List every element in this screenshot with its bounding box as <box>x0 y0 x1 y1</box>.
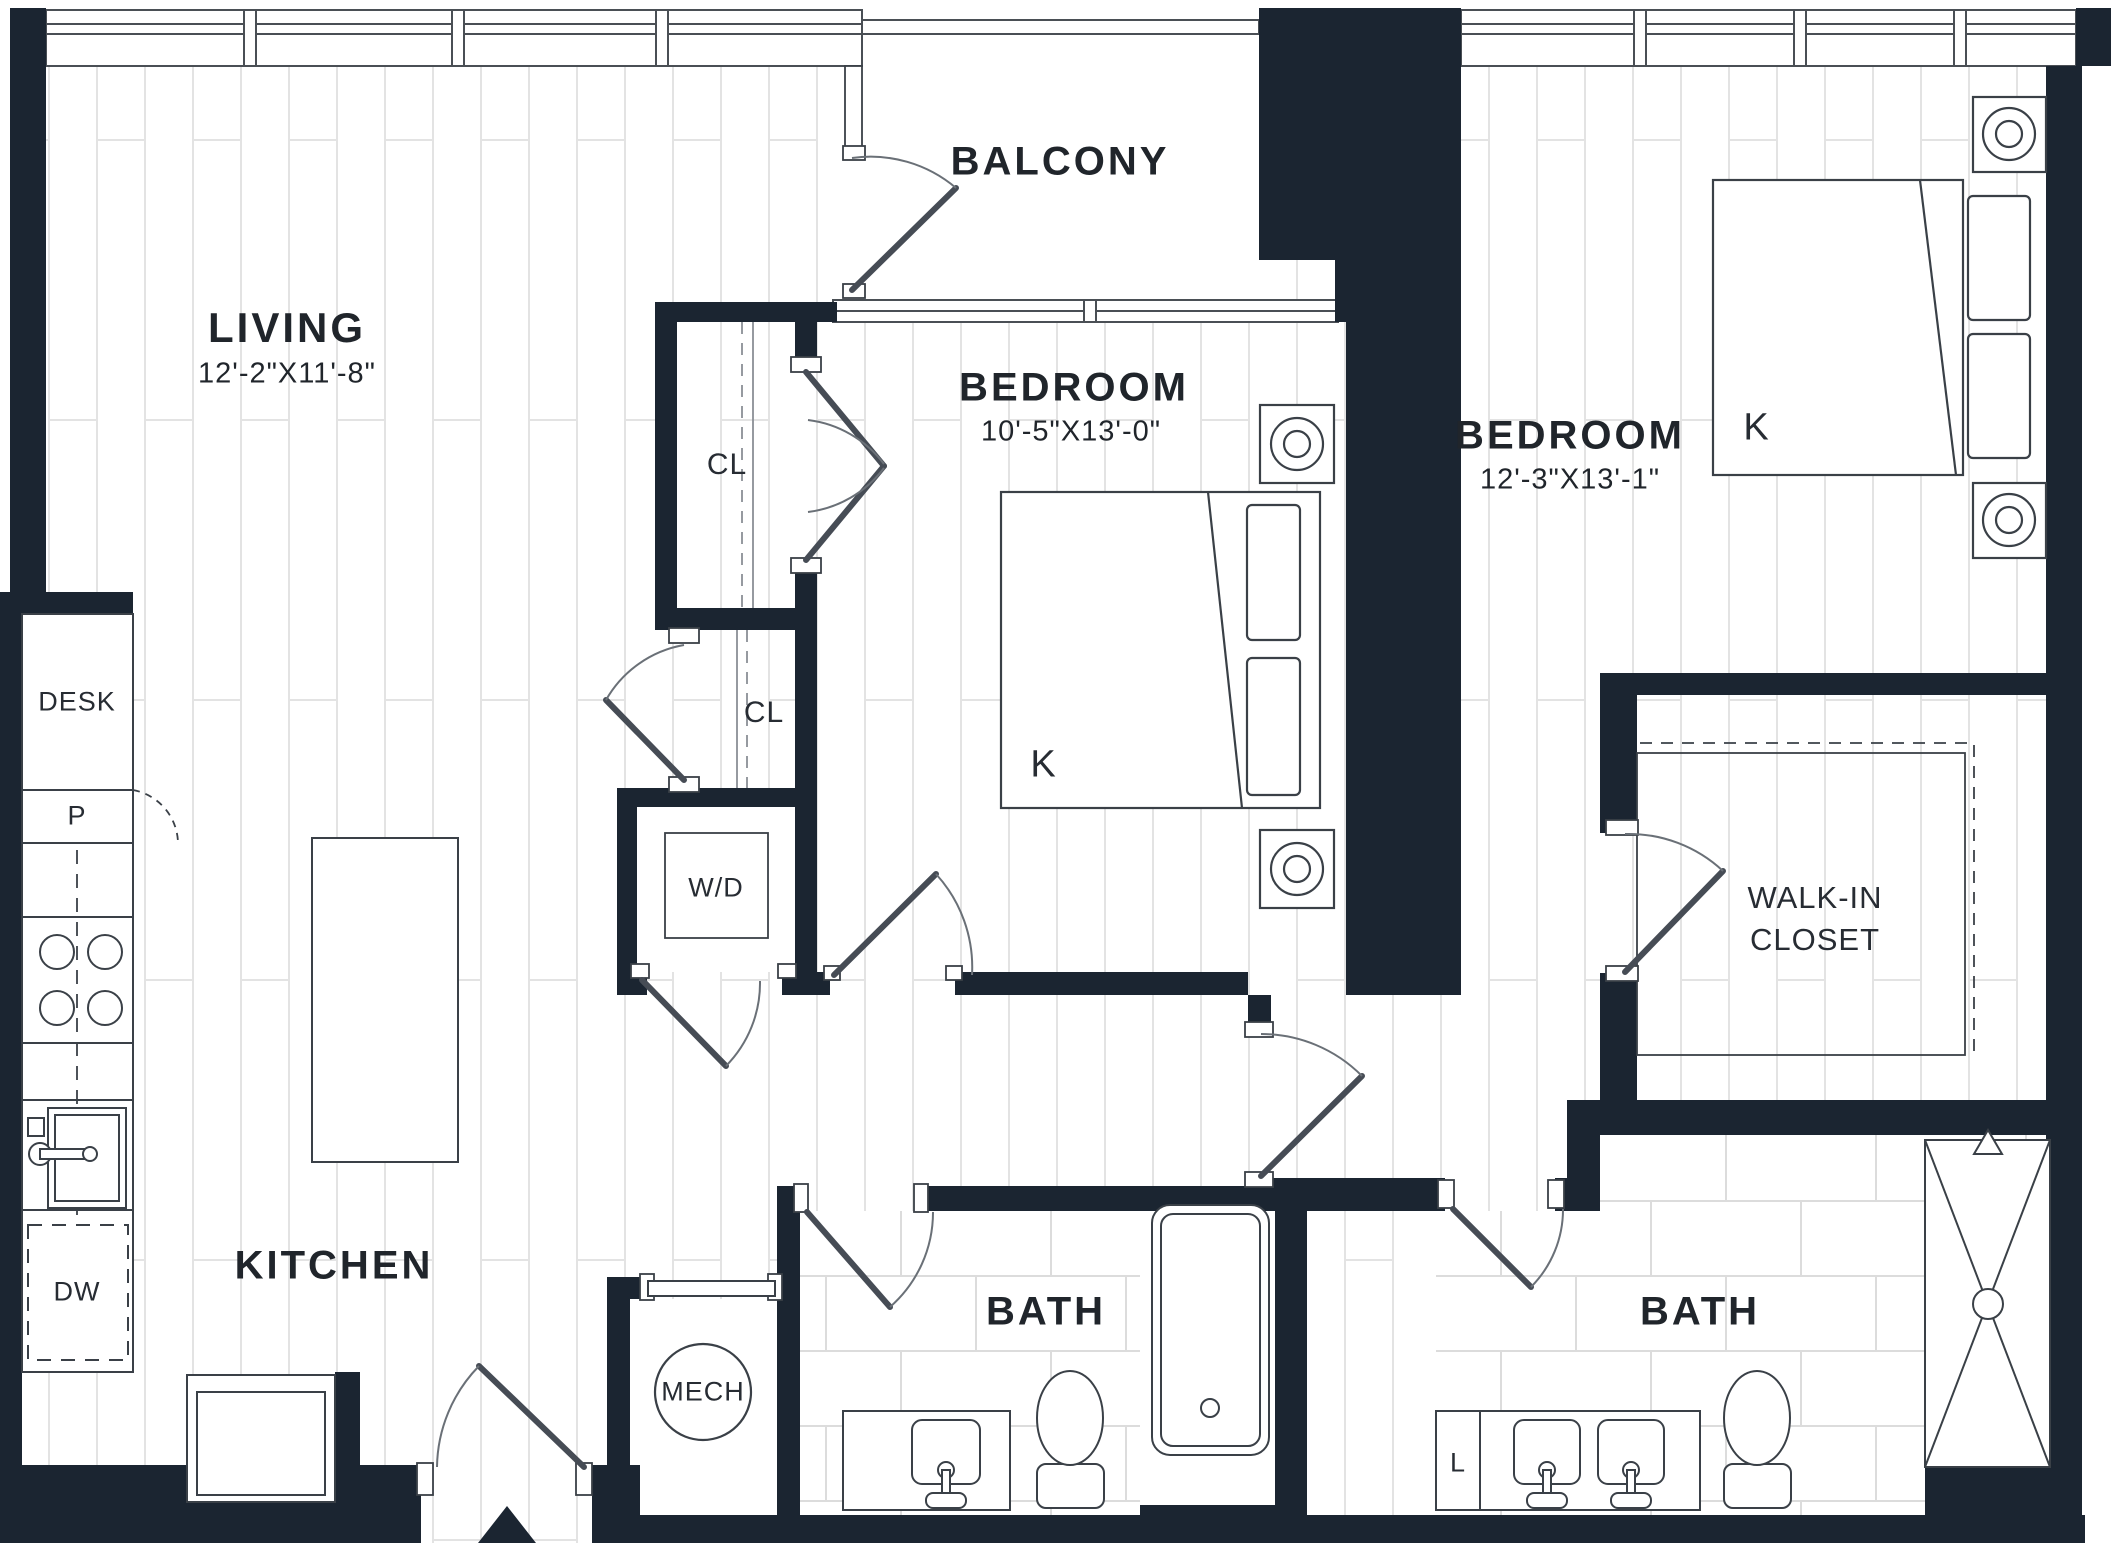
bedroom2-dims: 12'-3"X13'-1" <box>1480 464 1660 497</box>
wall <box>2076 8 2111 66</box>
wall <box>955 972 1248 995</box>
stove-burner <box>40 991 74 1025</box>
window-bedroom2 <box>1461 10 2076 66</box>
wall <box>1140 1505 1307 1543</box>
wall <box>655 302 677 608</box>
living-label: LIVING <box>208 304 366 352</box>
stove-burner <box>88 935 122 969</box>
pantry-label: P <box>67 801 86 832</box>
dishwasher-label: DW <box>54 1277 101 1308</box>
shower-drain <box>1973 1289 2003 1319</box>
window-mullion <box>1084 300 1096 322</box>
wall-walkin-north <box>1600 673 2046 695</box>
bath1-toilet-tank <box>1037 1464 1104 1508</box>
bedroom1-dims: 10'-5"X13'-0" <box>981 416 1161 449</box>
balcony-label: BALCONY <box>951 140 1170 185</box>
mech-door-leaf <box>648 1281 775 1296</box>
kitchen-label: KITCHEN <box>235 1244 434 1289</box>
faucet-icon <box>1527 1493 1567 1508</box>
laundry-label: W/D <box>688 873 743 904</box>
lamp-icon <box>1284 856 1310 882</box>
bath2-toilet-tank <box>1724 1464 1791 1508</box>
wall <box>335 1372 360 1465</box>
balcony-rail <box>862 20 1259 34</box>
wall-nook-west <box>0 592 22 1543</box>
bath1-label: BATH <box>986 1290 1106 1335</box>
window-mullion <box>1794 10 1806 66</box>
wall <box>22 592 133 614</box>
wall-between-bedrooms <box>1346 322 1461 995</box>
bed2-size-label: K <box>1743 407 1768 450</box>
wall <box>795 302 817 357</box>
bed1-pillow <box>1247 658 1300 795</box>
balcony-door-frame <box>845 66 862 152</box>
faucet-arm <box>40 1149 88 1159</box>
bedroom2-label: BEDROOM <box>1455 414 1685 459</box>
window-mullion <box>244 10 256 66</box>
tub-drain <box>1201 1399 1219 1417</box>
kitchen-island <box>312 838 458 1162</box>
faucet-icon <box>1611 1493 1651 1508</box>
bed2-pillow <box>1968 196 2030 320</box>
wall <box>1567 1100 1600 1211</box>
bed1-size-label: K <box>1030 744 1055 787</box>
bath1-toilet-bowl <box>1037 1371 1103 1465</box>
bath2-toilet-bowl <box>1724 1371 1790 1465</box>
walkin-label-line1: WALK-IN <box>1747 880 1882 916</box>
closet2-label: CL <box>744 696 784 730</box>
lamp-icon <box>1996 121 2022 147</box>
wall-mech-east <box>777 1186 800 1543</box>
wall <box>617 807 637 972</box>
desk-label: DESK <box>38 687 116 718</box>
closet1-label: CL <box>707 448 747 482</box>
linen-label: L <box>1450 1448 1466 1479</box>
walkin-label-line2: CLOSET <box>1750 922 1880 958</box>
wall-bottom <box>592 1515 2085 1543</box>
wall-walkin-west <box>1600 673 1637 833</box>
wall-walkin-west <box>1600 973 1637 1135</box>
floor-plan: LIVING 12'-2"X11'-8" BALCONY BEDROOM 10'… <box>0 0 2121 1550</box>
wall <box>795 573 817 972</box>
window-mullion <box>656 10 668 66</box>
stove-burner <box>88 991 122 1025</box>
wall <box>1925 1460 2082 1520</box>
faucet-head <box>83 1147 97 1161</box>
wall-column <box>1335 255 1461 322</box>
refrigerator-inner <box>197 1392 325 1495</box>
window-mullion <box>452 10 464 66</box>
window-mullion <box>1954 10 1966 66</box>
window-mullion <box>1634 10 1646 66</box>
wall <box>655 608 795 630</box>
bed2-pillow <box>1968 334 2030 458</box>
wall <box>617 788 795 807</box>
lamp-icon <box>1284 431 1310 457</box>
lamp-icon <box>1996 507 2022 533</box>
bed1-pillow <box>1247 505 1300 640</box>
wall-column <box>1259 8 1461 260</box>
wall-bath2-north <box>1600 1100 2050 1135</box>
faucet-icon <box>926 1493 966 1508</box>
bath2-label: BATH <box>1640 1290 1760 1335</box>
wall-mech-west <box>607 1277 630 1543</box>
wall-right <box>2046 66 2082 1543</box>
living-dims: 12'-2"X11'-8" <box>198 358 376 391</box>
bedroom1-label: BEDROOM <box>959 366 1189 411</box>
wall-left <box>10 8 46 600</box>
stove-burner <box>40 935 74 969</box>
wall-bath1-east <box>1275 1186 1307 1543</box>
faucet-base <box>28 1118 44 1136</box>
kitchen-counter <box>22 614 133 1372</box>
mech-label: MECH <box>661 1377 745 1408</box>
